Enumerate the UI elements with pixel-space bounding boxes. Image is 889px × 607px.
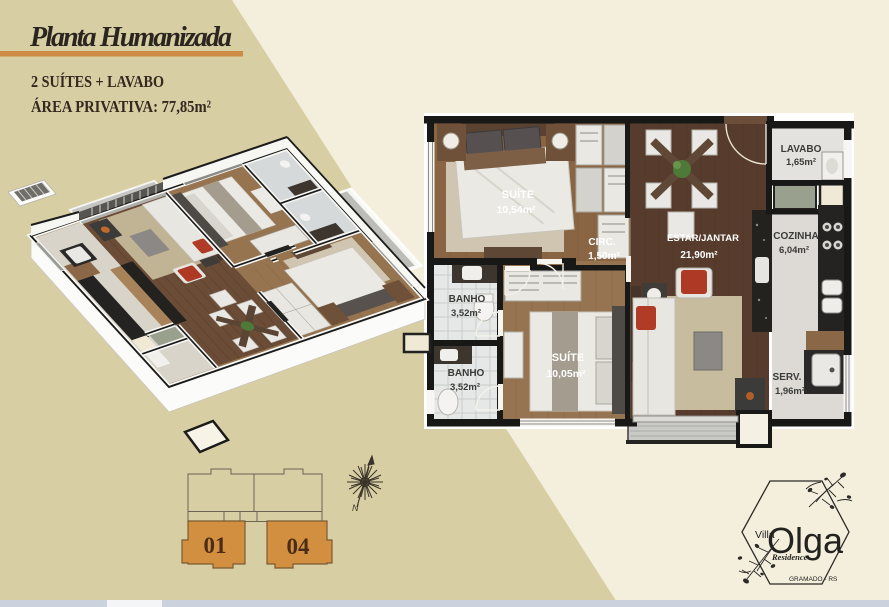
svg-text:N: N xyxy=(352,503,359,513)
svg-text:SERV.: SERV. xyxy=(773,372,802,383)
svg-text:SUÍTE: SUÍTE xyxy=(552,351,584,364)
svg-text:CIRC.: CIRC. xyxy=(588,237,615,248)
svg-text:2 SUÍTES + LAVABO: 2 SUÍTES + LAVABO xyxy=(31,72,164,91)
svg-text:BANHO: BANHO xyxy=(448,368,485,379)
svg-text:COZINHA: COZINHA xyxy=(773,231,819,242)
svg-text:01: 01 xyxy=(204,533,227,558)
svg-text:3,52m²: 3,52m² xyxy=(450,382,480,393)
svg-text:21,90m²: 21,90m² xyxy=(680,250,718,261)
svg-text:GRAMADO - RS: GRAMADO - RS xyxy=(789,576,838,583)
svg-text:1,65m²: 1,65m² xyxy=(786,157,816,168)
svg-text:Planta Humanizada: Planta Humanizada xyxy=(29,22,232,53)
svg-text:LAVABO: LAVABO xyxy=(781,144,822,155)
svg-text:10,54m²: 10,54m² xyxy=(496,204,536,216)
svg-text:3,52m²: 3,52m² xyxy=(451,308,481,319)
svg-text:10,05m²: 10,05m² xyxy=(546,368,586,380)
svg-text:6,04m²: 6,04m² xyxy=(779,245,809,256)
svg-text:SUÍTE: SUÍTE xyxy=(502,188,534,201)
svg-text:ÁREA PRIVATIVA: 77,85m²: ÁREA PRIVATIVA: 77,85m² xyxy=(31,97,211,116)
svg-text:BANHO: BANHO xyxy=(449,294,486,305)
svg-text:ESTAR/JANTAR: ESTAR/JANTAR xyxy=(667,233,739,244)
svg-text:1,96m²: 1,96m² xyxy=(775,386,805,397)
svg-text:04: 04 xyxy=(287,534,311,559)
svg-text:Residence: Residence xyxy=(771,552,808,562)
svg-text:1,50m²: 1,50m² xyxy=(588,251,620,262)
